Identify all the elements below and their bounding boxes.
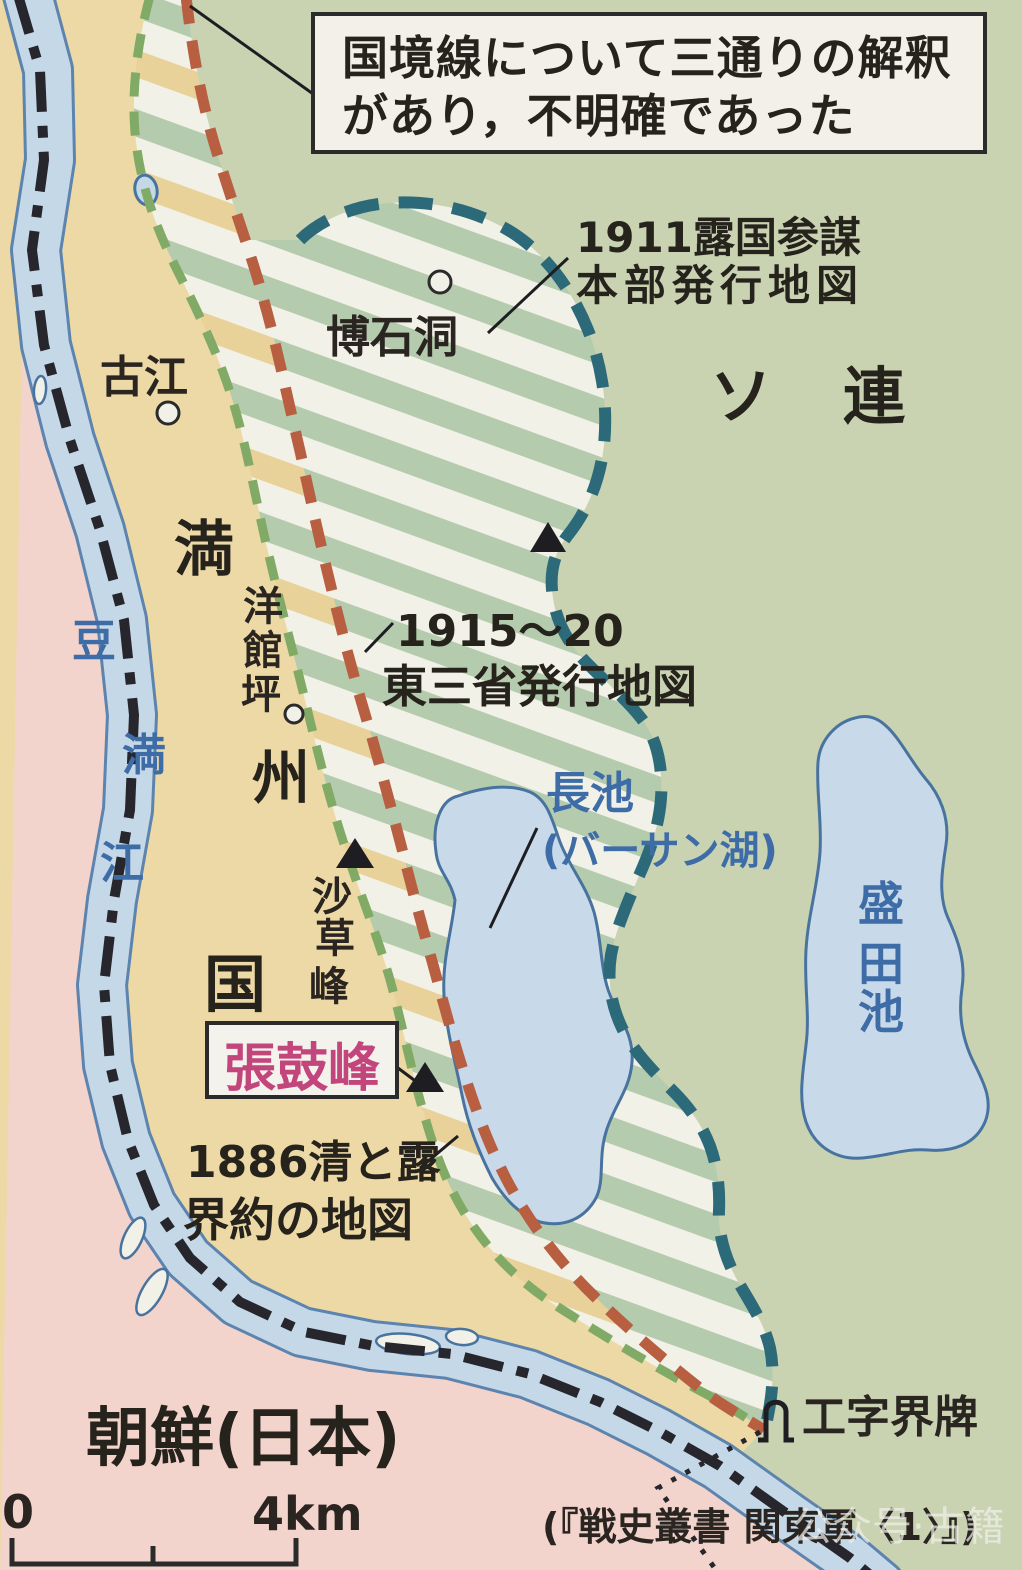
label-manchukuo-char: 国	[204, 948, 266, 1021]
label-map1886-line1: 1886清と露	[186, 1137, 441, 1188]
label-manchukuo-char: 満	[174, 515, 234, 585]
label-manchukuo-char: 州	[252, 744, 310, 812]
historical-border-map: 国境線について三通りの解釈 があり，不明確であった 1911露国参謀 本部発行地…	[0, 0, 1022, 1570]
scale-4km: 4km	[252, 1487, 363, 1541]
label-sasouhou-char: 沙	[312, 874, 352, 920]
label-kokou: 古江	[100, 352, 188, 403]
label-sasouhou-char: 峰	[309, 964, 349, 1010]
label-map1911-line2: 本部発行地図	[576, 261, 864, 310]
village-marker-hakusekidou	[429, 271, 451, 293]
label-map1886-line2: 界約の地図	[183, 1193, 413, 1247]
village-marker-youkanhei	[285, 705, 303, 723]
label-choukohou: 張鼓峰	[224, 1039, 380, 1099]
label-tumen-river-char: 満	[122, 730, 166, 781]
note-box-line1: 国境線について三通りの解釈	[342, 31, 952, 85]
label-hakusekidou: 博石洞	[326, 312, 458, 363]
label-map1911-line1: 1911露国参謀	[576, 213, 861, 262]
label-lake-morita-char: 田	[858, 937, 904, 991]
label-kojikaihai: 工字界牌	[802, 1392, 978, 1443]
scale-zero: 0	[2, 1485, 34, 1539]
label-tumen-river-char: 江	[100, 838, 144, 889]
map-canvas: 国境線について三通りの解釈 があり，不明確であった 1911露国参謀 本部発行地…	[0, 0, 1022, 1570]
label-youkanhei-char: 館	[243, 628, 283, 674]
label-youkanhei-char: 洋	[243, 584, 283, 630]
watermark: 公众号·古籍	[792, 1504, 1005, 1550]
label-lake-khasan-line2: (バーサン湖)	[542, 828, 778, 874]
label-soviet-union-char: 連	[843, 360, 906, 433]
label-lake-khasan-line1: 長池	[546, 768, 634, 819]
note-box-line2: があり，不明確であった	[342, 89, 855, 143]
label-tumen-river-char: 豆	[72, 616, 116, 667]
label-korea: 朝鮮(日本)	[86, 1402, 401, 1476]
label-sasouhou-char: 草	[315, 916, 355, 962]
village-marker-kokou	[157, 402, 179, 424]
label-map1915-line1: 1915〜20	[396, 606, 624, 657]
label-lake-morita-char: 盛	[858, 877, 904, 931]
label-youkanhei-char: 坪	[241, 672, 281, 718]
label-map1915-line2: 東三省発行地図	[382, 660, 697, 713]
label-lake-morita-char: 池	[858, 985, 904, 1039]
label-soviet-union-char: ソ	[710, 360, 772, 433]
